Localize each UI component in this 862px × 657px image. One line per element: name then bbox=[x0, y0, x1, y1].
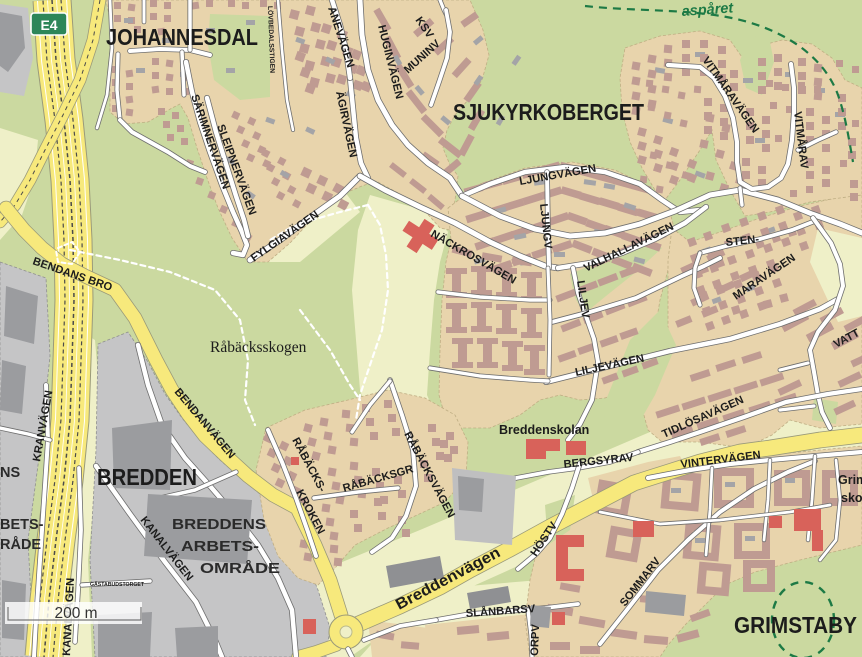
svg-text:RÅDE: RÅDE bbox=[0, 536, 41, 553]
svg-text:Breddenskolan: Breddenskolan bbox=[499, 423, 589, 437]
svg-text:BETS-: BETS- bbox=[0, 517, 44, 533]
svg-text:BREDDEN: BREDDEN bbox=[97, 464, 197, 490]
svg-text:ORPV: ORPV bbox=[529, 623, 542, 656]
svg-text:JOHANNESDAL: JOHANNESDAL bbox=[106, 24, 258, 50]
svg-text:BREDDENS: BREDDENS bbox=[172, 517, 266, 533]
svg-text:SJUKYRKOBERGET: SJUKYRKOBERGET bbox=[453, 99, 644, 125]
svg-text:Grim: Grim bbox=[838, 473, 862, 487]
svg-text:GÄSTABUDSTORGET: GÄSTABUDSTORGET bbox=[90, 581, 145, 588]
svg-text:Råbäcksskogen: Råbäcksskogen bbox=[210, 339, 307, 356]
svg-text:OMRÅDE: OMRÅDE bbox=[200, 560, 280, 577]
svg-text:NS: NS bbox=[0, 465, 20, 481]
svg-text:ARBETS-: ARBETS- bbox=[181, 539, 259, 555]
svg-text:sko: sko bbox=[841, 491, 862, 505]
svg-text:GRIMSTABY: GRIMSTABY bbox=[734, 612, 857, 638]
svg-text:200 m: 200 m bbox=[54, 605, 97, 622]
svg-text:E4: E4 bbox=[40, 17, 57, 33]
